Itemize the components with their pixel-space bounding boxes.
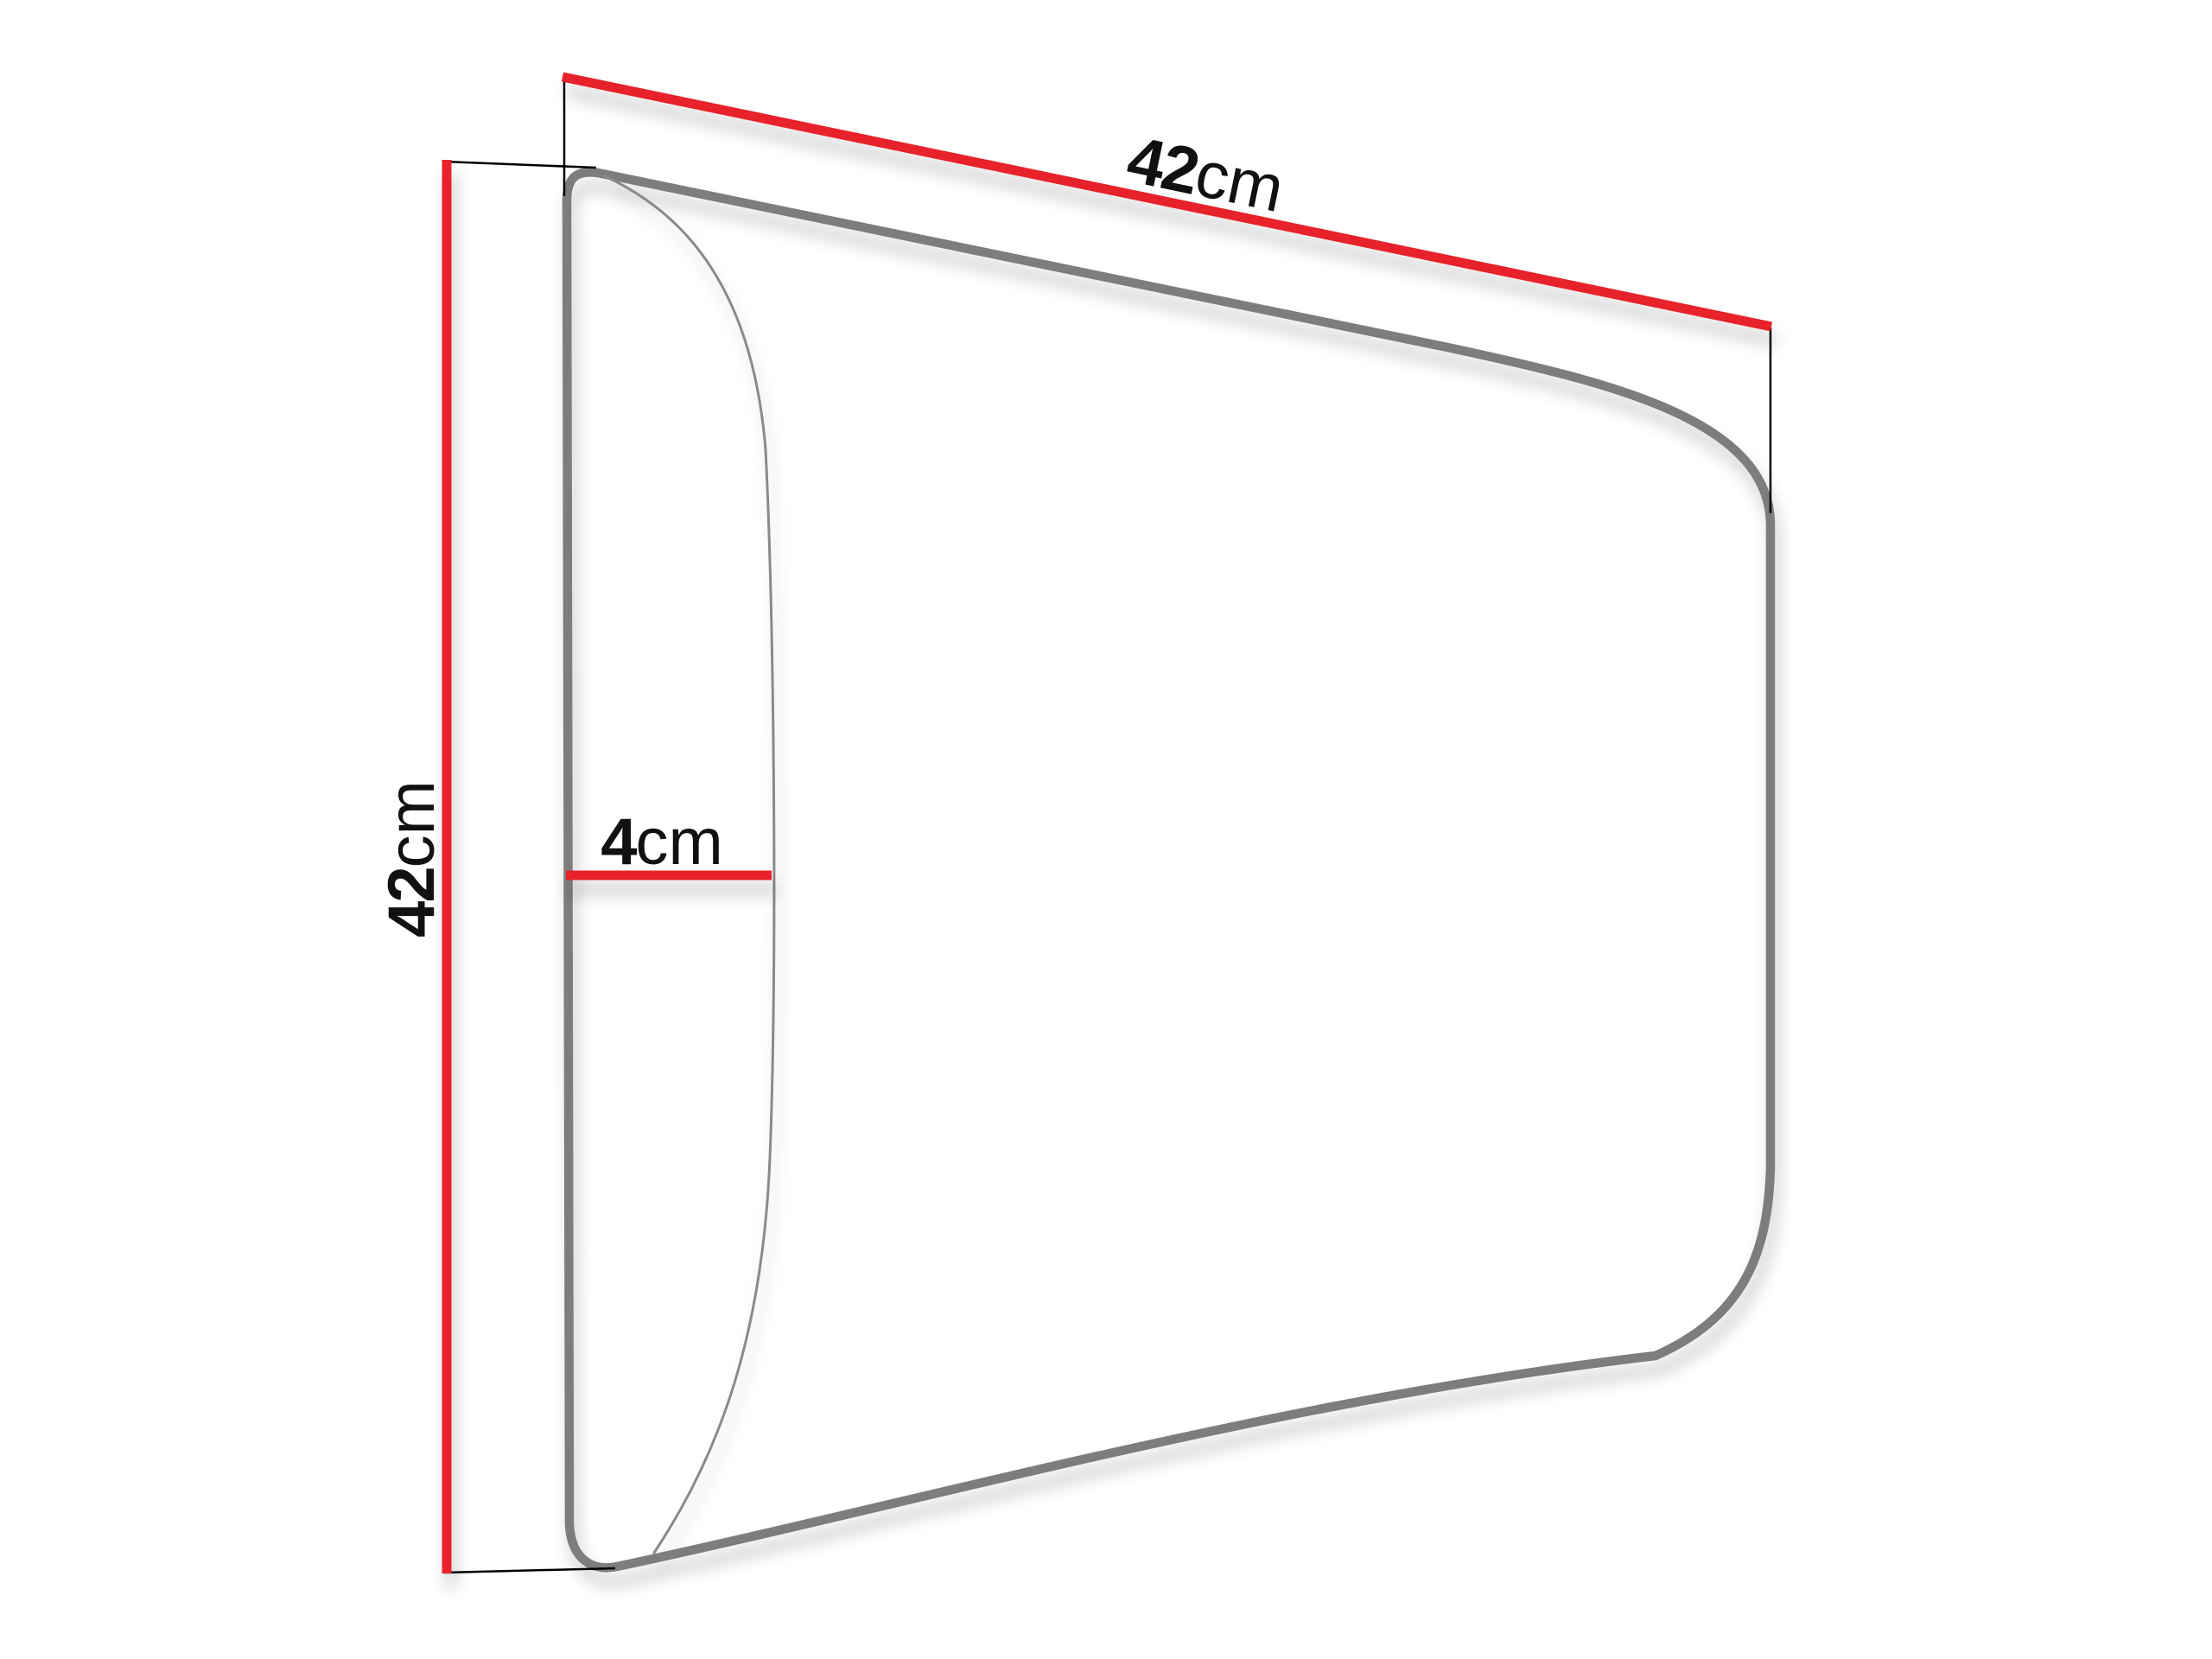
height-unit: cm (375, 780, 448, 868)
height-extension-line-top (444, 162, 596, 168)
depth-label: 4cm (601, 805, 723, 879)
height-extension-line-bottom (444, 1568, 615, 1573)
width-label: 42cm (1122, 123, 1290, 226)
height-value: 42 (375, 868, 448, 938)
depth-value: 4 (601, 805, 637, 879)
depth-unit: cm (635, 805, 722, 879)
dimension-diagram: 42cm 42cm 4cm (0, 0, 2212, 1659)
diagram-canvas: 42cm 42cm 4cm (0, 0, 2212, 1659)
height-label: 42cm (375, 780, 448, 938)
